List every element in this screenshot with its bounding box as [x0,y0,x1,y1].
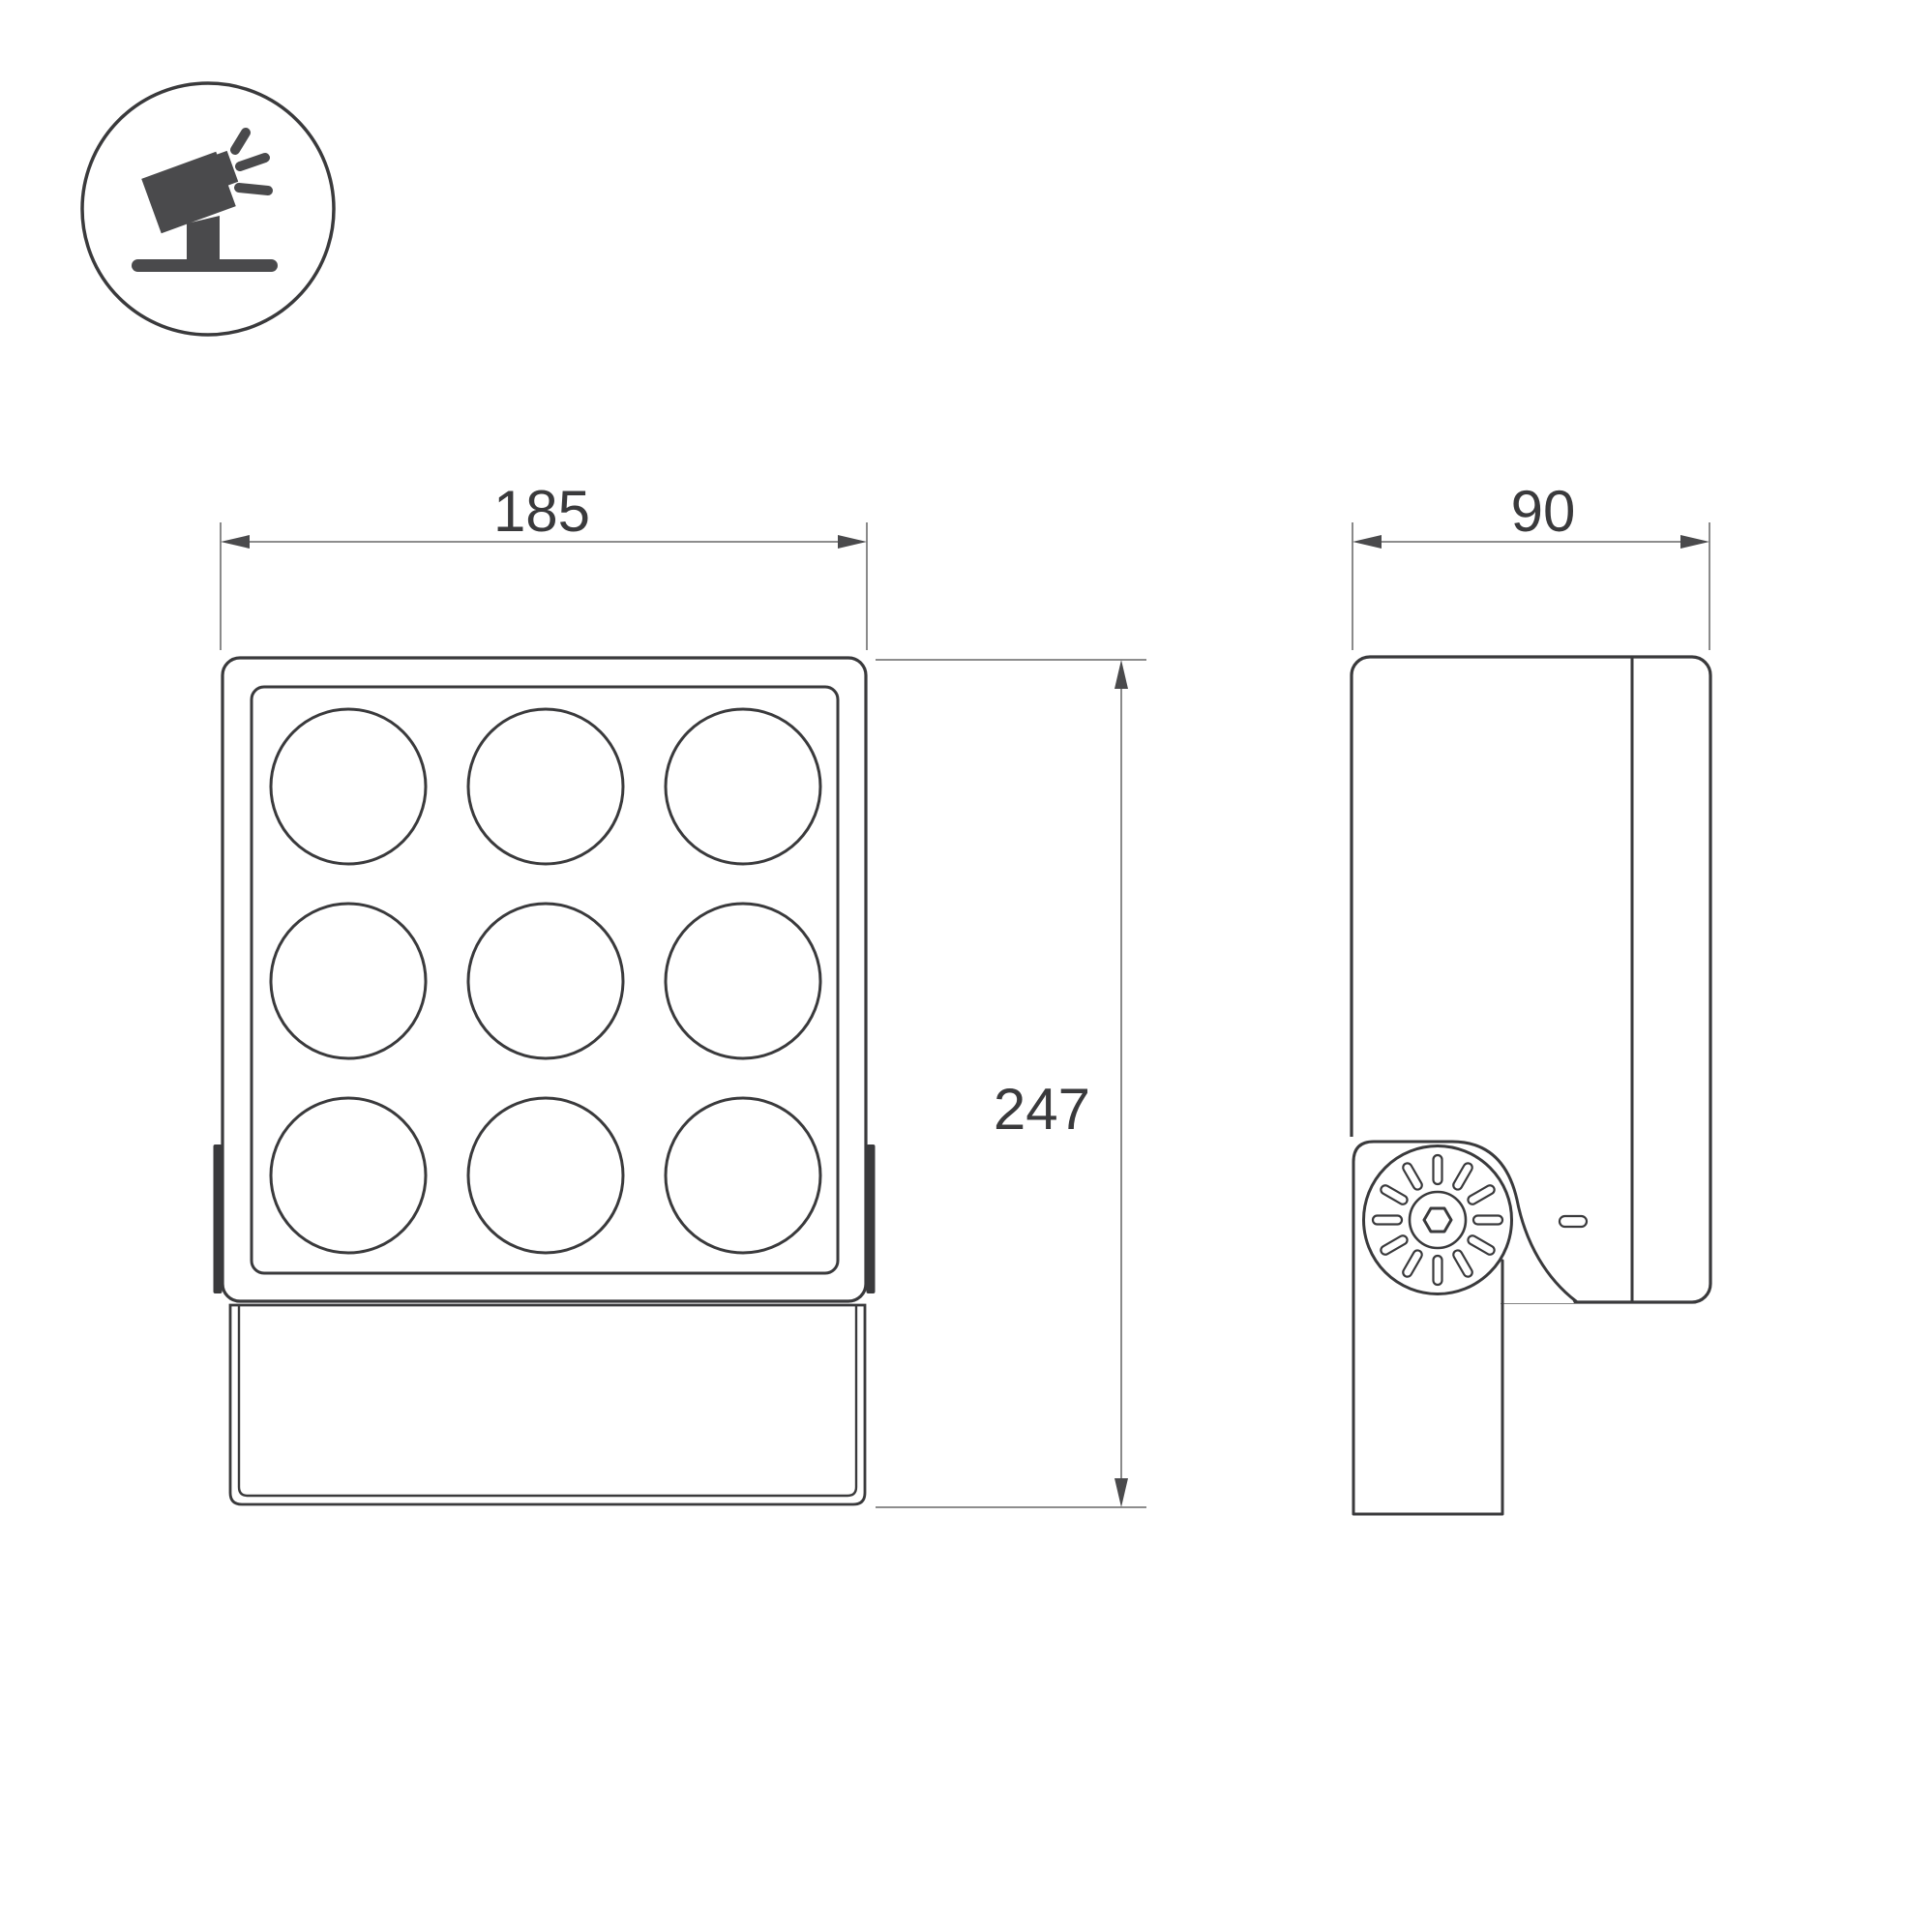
led-lens-grid [271,709,820,1253]
arrowhead-right [1680,535,1709,549]
pivot-knob-hex-socket [1424,1208,1451,1232]
arrowhead-right [838,535,867,549]
arrowhead-bottom [1115,1478,1128,1507]
arrowhead-left [1352,535,1382,549]
led-lens [666,1098,820,1253]
icon-base [132,259,278,272]
pivot-knob [1364,1146,1512,1294]
led-lens [271,904,426,1058]
technical-drawing-page: 185 247 [0,0,1932,1932]
led-lens [468,1098,623,1253]
led-lens [468,904,623,1058]
led-lens [666,904,820,1058]
front-view: 185 247 [214,479,1147,1507]
right-hinge-tab [867,1144,876,1293]
side-depth-label: 90 [1511,479,1576,544]
left-hinge-tab [214,1144,223,1293]
led-lens [468,709,623,864]
arrowhead-left [221,535,250,549]
led-lens [271,709,426,864]
led-lens [271,1098,426,1253]
housing-slot-mark [1560,1216,1587,1227]
icon-stand [187,216,220,263]
front-width-label: 185 [493,479,590,544]
front-height-label: 247 [994,1077,1090,1142]
floodlight-dimension-drawing: 185 247 [0,0,1932,1932]
arrowhead-top [1115,660,1128,689]
tilted-floodlight-on-stand-icon [82,83,334,335]
led-lens [666,709,820,864]
bracket-crossbar-outer [230,1305,865,1504]
side-view: 90 [1349,479,1710,1516]
